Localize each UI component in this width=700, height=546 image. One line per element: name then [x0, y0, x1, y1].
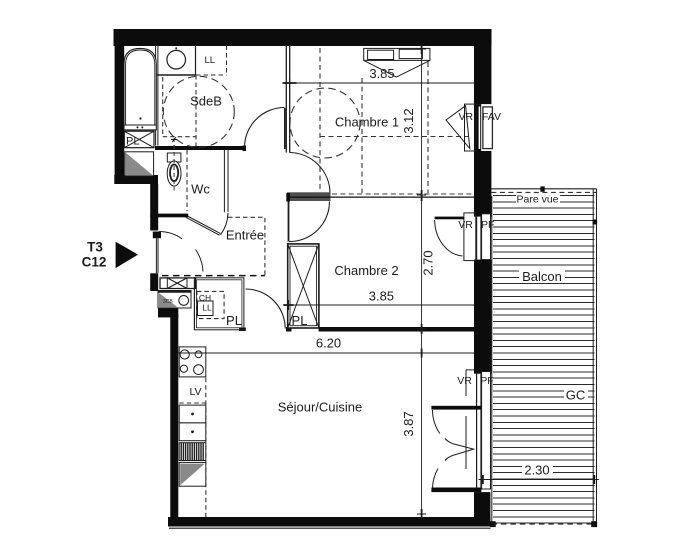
- svg-text:3.87: 3.87: [401, 411, 416, 436]
- svg-text:LV: LV: [189, 386, 201, 398]
- svg-text:FAV: FAV: [482, 111, 501, 123]
- svg-text:Balcon: Balcon: [522, 269, 562, 284]
- svg-text:VR: VR: [458, 219, 473, 231]
- svg-text:C12: C12: [82, 255, 107, 270]
- svg-text:PF: PF: [481, 219, 494, 231]
- svg-text:Séjour/Cuisine: Séjour/Cuisine: [278, 400, 363, 415]
- svg-text:T3: T3: [87, 240, 103, 255]
- svg-text:VR: VR: [457, 375, 472, 387]
- svg-text:2.30: 2.30: [524, 463, 549, 478]
- svg-text:3CB: 3CB: [163, 299, 173, 305]
- svg-text:CH: CH: [199, 293, 211, 303]
- svg-text:PL: PL: [226, 313, 242, 328]
- svg-text:6.20: 6.20: [316, 336, 341, 351]
- svg-text:PL: PL: [292, 313, 308, 328]
- svg-text:3.85: 3.85: [369, 66, 394, 81]
- svg-text:Pare vue: Pare vue: [516, 194, 558, 206]
- svg-text:Entrée: Entrée: [226, 228, 264, 243]
- svg-text:Chambre 2: Chambre 2: [334, 263, 398, 278]
- svg-text:Chambre 1: Chambre 1: [335, 115, 399, 130]
- svg-text:LL: LL: [205, 55, 216, 66]
- svg-text:3.12: 3.12: [401, 108, 416, 133]
- svg-text:SdeB: SdeB: [190, 94, 222, 109]
- svg-text:VR: VR: [459, 111, 474, 123]
- svg-text:3.85: 3.85: [369, 289, 394, 304]
- svg-text:LL: LL: [202, 303, 212, 313]
- svg-text:Wc: Wc: [191, 182, 210, 197]
- svg-text:PL: PL: [126, 136, 139, 148]
- svg-text:2.70: 2.70: [421, 250, 436, 275]
- svg-text:GC: GC: [566, 388, 586, 403]
